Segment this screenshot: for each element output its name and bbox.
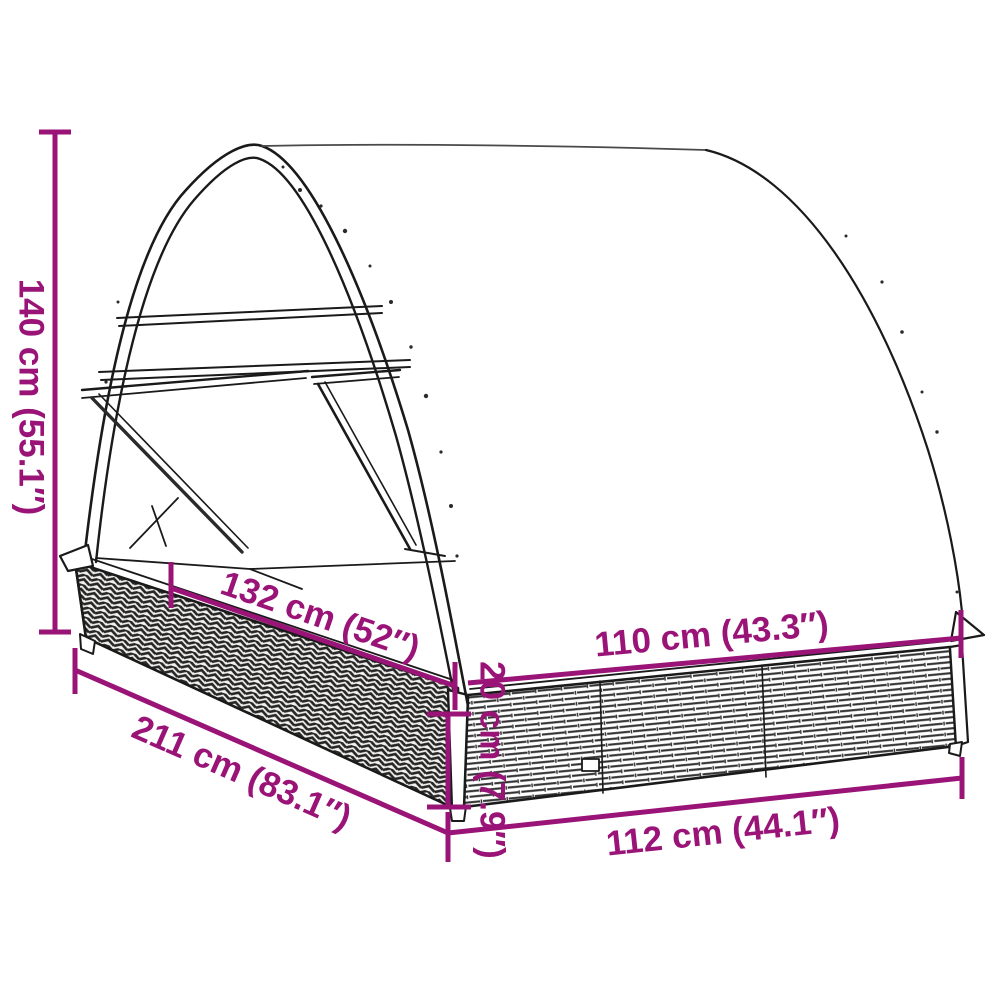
dim-overall-width-label: 112 cm (44.1″) — [604, 800, 842, 864]
base-drain-detail — [582, 759, 599, 771]
diagram-canvas: 140 cm (55.1″) 132 cm (52″) 110 cm (43.3… — [0, 0, 1000, 1000]
base-front-corner-post — [448, 690, 468, 810]
left-backrest — [82, 371, 308, 552]
lounger-drawing — [60, 145, 984, 821]
dimension-diagram: 140 cm (55.1″) 132 cm (52″) 110 cm (43.3… — [0, 0, 1000, 1000]
canopy-left-foot — [60, 545, 93, 571]
base-right-face — [464, 641, 968, 807]
stipple-shading — [104, 166, 958, 594]
dim-overall-height-label: 140 cm (55.1″) — [12, 279, 51, 516]
canopy-cross-bars — [99, 306, 410, 380]
left-backrest-ratchet — [130, 498, 178, 548]
canopy-rear-arch — [262, 145, 984, 641]
